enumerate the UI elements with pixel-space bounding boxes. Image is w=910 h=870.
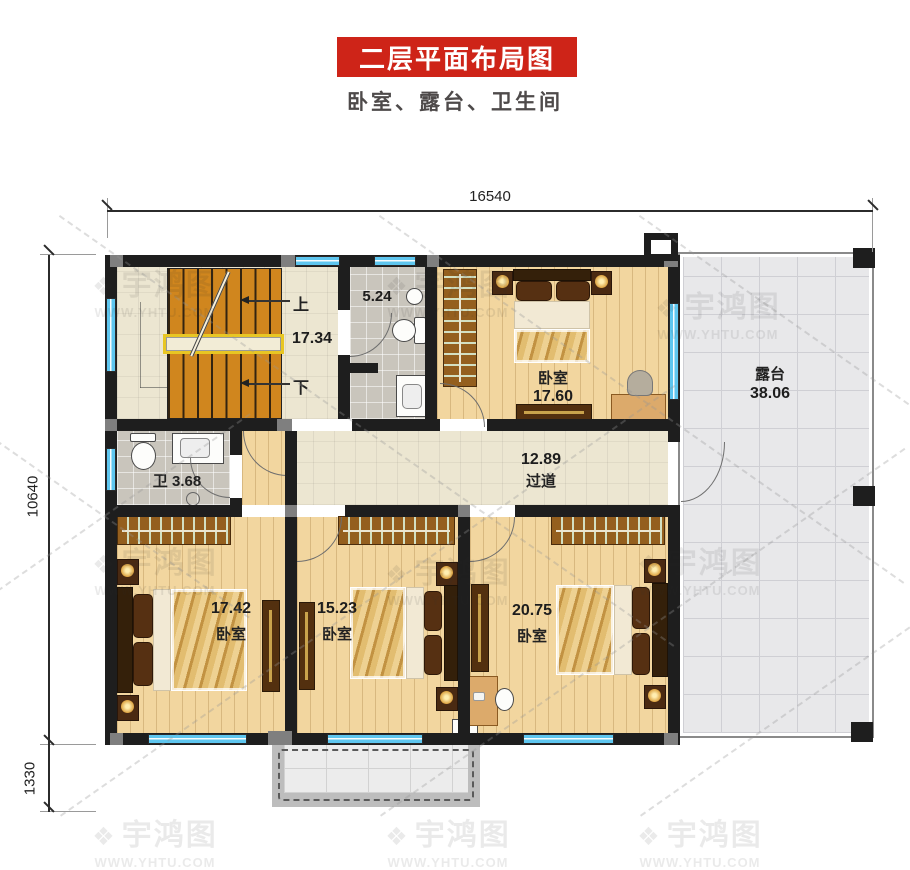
wall-junction [105,419,117,431]
wardrobe-rail [122,530,226,532]
wall-bedroom-divider-2 [458,517,470,733]
hallway-name-label: 过道 [511,470,571,491]
stairwell-outline [140,387,168,388]
bed-pillow [632,633,650,675]
lamp-icon [648,689,661,702]
watermark-url: WWW.YHTU.COM [385,855,510,870]
terrace-post [853,486,875,506]
stair-landing [163,334,284,354]
floor-plan-page: 二层平面布局图 卧室、露台、卫生间 16540 10640 1330 [0,0,910,870]
bath-top-area-label: 5.24 [353,288,401,305]
wall-hall-bottom-c [345,505,470,517]
dimension-left-lower-line [48,745,50,812]
dresser-mirror [627,370,653,396]
bed-headboard [444,585,458,681]
dimension-left-lower-value: 1330 [22,749,39,809]
watermark-url: WWW.YHTU.COM [92,855,217,870]
watermark-name: 宇鸿图 [415,819,511,852]
toilet-tank-icon [130,433,156,442]
lamp-icon [440,691,453,704]
bedroom-right-name-label: 卧室 [502,625,562,646]
wall-hall-bottom-d [515,505,668,517]
bed-pillow [424,635,442,675]
bed-sheet [514,301,590,329]
dimension-top-value: 16540 [107,188,873,205]
wall-bath-bedroom [425,267,437,419]
bed-pillow [516,281,552,301]
bed-blanket [556,585,614,675]
watermark: ❖宇鸿图 WWW.YHTU.COM [92,810,217,870]
wall-stair-bath-upper [338,267,350,310]
dimension-left-value: 10640 [25,462,42,532]
stair-up-arrow [240,296,249,304]
wardrobe-rail [556,530,660,532]
bath-left-label: 卫 3.68 [121,470,233,491]
watermark-url: WWW.YHTU.COM [637,855,762,870]
wall-hall-top-c [487,419,668,431]
bed-pillow [133,594,153,638]
chimney-shaft [644,233,678,261]
shower-head-icon [406,288,423,305]
dimension-top-line [107,210,873,212]
terrace-name-label: 露台 [740,363,800,384]
terrace-area-label: 38.06 [737,385,803,403]
wall-junction [285,505,297,517]
wall-bath-left-right-a [230,431,242,455]
lamp-icon [648,563,661,576]
wall-entry-right [285,431,297,505]
bed-pillow [632,587,650,629]
wall-junction [427,255,439,267]
watermark-name: 宇鸿图 [667,819,763,852]
tv-cabinet-detail [524,411,584,414]
bedroom-mid-area-label: 15.23 [304,600,370,618]
wall-hall-bottom-a [117,505,242,517]
terrace-floor [683,257,869,733]
stairwell-outline [140,302,141,388]
lamp-icon [595,275,608,288]
toilet-bowl-icon [392,319,416,342]
bed-pillow [556,281,590,301]
watermark: ❖宇鸿图 WWW.YHTU.COM [637,810,762,870]
watermark-logo-icon: ❖ [385,823,409,851]
dimension-tick [867,199,878,210]
window-bath-top [374,256,416,266]
wall-sink-nook-stub [350,363,378,373]
watermark: ❖宇鸿图 WWW.YHTU.COM [385,810,510,870]
wardrobe-rail [459,274,461,382]
bath-left-name: 卫 [153,473,168,490]
watermark-name: 宇鸿图 [122,819,218,852]
stair-area-label: 17.34 [280,330,344,348]
tv-cabinet-detail [269,610,272,682]
vanity-counter [469,676,498,726]
bed-headboard [652,583,668,677]
bed-sheet [614,585,632,675]
balcony-eave-dashed-outline [278,749,474,801]
towel-ring-icon [186,492,200,506]
bedroom-right-area-label: 20.75 [499,602,565,620]
hallway-floor [292,431,668,505]
bath-left-area: 3.68 [172,473,201,490]
wall-hall-top-b [352,419,440,431]
lamp-icon [440,566,453,579]
wall-junction [458,505,470,517]
wall-junction [277,419,292,431]
balcony-corner-block [268,731,292,745]
stair-down-lead-line [246,383,290,385]
wall-junction [110,255,123,267]
bed-pillow [424,591,442,631]
window-bedroom-left-bottom [148,734,247,744]
bed-sheet [406,587,424,679]
wall-hall-top-a [117,419,292,431]
tv-cabinet-detail [478,594,481,662]
vanity-sink-icon [473,692,485,701]
bedroom-top-area-label: 17.60 [520,388,586,406]
watermark-logo-icon: ❖ [92,823,116,851]
page-title: 二层平面布局图 [337,37,577,77]
window-stair-top [295,256,340,266]
sink-basin-icon [402,384,422,409]
wall-stair-bath-lower [338,355,350,419]
toilet-bowl-icon [131,442,156,470]
window-bedroom-mid-bottom [327,734,423,744]
dimension-left-line [48,255,50,745]
bedroom-left-name-label: 卧室 [201,623,261,644]
wall-junction [281,255,295,267]
wall-junction [664,733,678,745]
bed-blanket [514,329,590,363]
vanity-stool [495,688,514,711]
lamp-icon [496,275,509,288]
wall-bedroom-divider-1 [285,517,297,733]
sink-basin-icon [180,438,210,458]
window-stair-left [106,298,116,372]
hallway-area-label: 12.89 [508,451,574,469]
lamp-icon [121,564,134,577]
stair-down-label: 下 [290,374,312,398]
dresser-table [611,394,666,420]
stair-down-arrow [240,379,249,387]
bedroom-mid-name-label: 卧室 [307,623,367,644]
bedroom-left-area-label: 17.42 [198,600,264,618]
lamp-icon [121,700,134,713]
bed-headboard [513,269,591,281]
bed-sheet [153,589,171,691]
window-bath-left [106,448,116,491]
wardrobe-rail [343,530,450,532]
bed-pillow [133,642,153,686]
window-bedroom-top-right [669,303,679,400]
bed-headboard [117,587,133,693]
wall-junction [110,733,123,745]
watermark-logo-icon: ❖ [637,823,661,851]
stair-up-lead-line [246,300,290,302]
terrace-post [851,722,873,742]
window-bedroom-right-bottom [523,734,614,744]
page-subtitle: 卧室、露台、卫生间 [0,86,910,116]
wall-right-lower [668,505,680,745]
stair-up-label: 上 [290,291,312,315]
bedroom-top-name-label: 卧室 [523,367,583,388]
